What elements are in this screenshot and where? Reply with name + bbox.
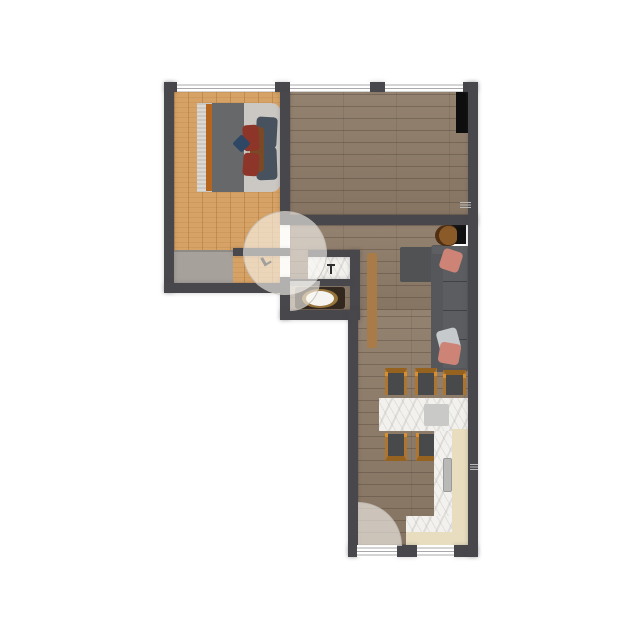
wall-corridor-left (348, 310, 358, 557)
wall-top-pier-1 (275, 82, 290, 92)
floorplan-canvas (0, 0, 640, 640)
black-unit[interactable] (456, 92, 468, 133)
window-room-top-1[interactable] (290, 82, 370, 92)
wall-top-pier-2 (370, 82, 385, 92)
dimension-mark-2 (470, 464, 478, 470)
double-bed[interactable] (197, 103, 281, 192)
table-object (424, 404, 449, 426)
dimension-mark-1 (460, 202, 471, 208)
window-bedroom-top[interactable] (177, 82, 275, 92)
faucet-icon (327, 264, 335, 274)
wall-room-bottom (290, 215, 478, 225)
wall-left (164, 82, 174, 293)
dining-chair-1[interactable] (385, 368, 407, 395)
wardrobe[interactable] (174, 250, 233, 283)
window-kitchen-1[interactable] (357, 545, 397, 557)
wall-bedroom-divider (280, 92, 290, 225)
window-kitchen-2[interactable] (417, 545, 454, 557)
wall-right (468, 82, 478, 557)
window-room-top-2[interactable] (385, 82, 463, 92)
dining-chair-3[interactable] (443, 370, 466, 395)
kitchen-cabinet-right[interactable] (452, 429, 468, 545)
kitchen-cabinet-bottom[interactable] (406, 532, 468, 545)
kitchen-appliance[interactable] (443, 458, 452, 492)
bed-pillow-maroon-2 (242, 152, 260, 176)
sofa-pillow-salmon-2 (437, 341, 461, 365)
sofa-chaise[interactable] (400, 247, 434, 282)
dining-chair-2[interactable] (415, 368, 437, 395)
wall-bottom-post-left (348, 545, 357, 557)
top-right-room-floor[interactable] (290, 92, 468, 215)
dining-chair-4[interactable] (385, 434, 407, 461)
wall-bottom-pier (397, 545, 417, 557)
desk-chair[interactable] (435, 225, 457, 246)
sideboard[interactable] (367, 253, 377, 348)
bed-throw-fringe (197, 104, 206, 191)
